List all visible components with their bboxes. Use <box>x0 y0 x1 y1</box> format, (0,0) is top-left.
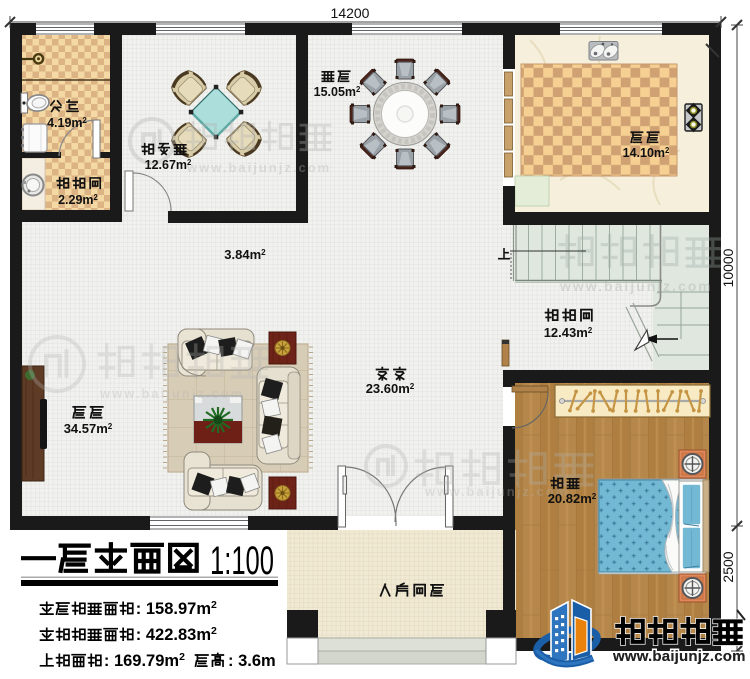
svg-text:1:100: 1:100 <box>210 539 274 583</box>
svg-text:2.29m2: 2.29m2 <box>58 193 98 207</box>
svg-text:: 422.83m2: : 422.83m2 <box>136 625 217 644</box>
svg-text:www.baijunjz.com: www.baijunjz.com <box>612 648 746 665</box>
svg-text:4.19m2: 4.19m2 <box>47 116 87 130</box>
svg-text:23.60m2: 23.60m2 <box>366 381 415 396</box>
svg-text:: 169.79m2: : 169.79m2 <box>104 651 185 670</box>
svg-text:12.67m2: 12.67m2 <box>145 158 192 172</box>
svg-text:www.baijunjz.com: www.baijunjz.com <box>186 160 331 175</box>
svg-text:www.baijunjz.com: www.baijunjz.com <box>559 278 713 294</box>
svg-text:14200: 14200 <box>331 5 370 21</box>
svg-text:www.baijunjz.com: www.baijunjz.com <box>99 386 244 401</box>
svg-text:: 3.6m: : 3.6m <box>228 652 276 670</box>
svg-text:12.43m2: 12.43m2 <box>544 325 593 340</box>
svg-text:: 158.97m2: : 158.97m2 <box>136 599 217 618</box>
svg-text:15.05m2: 15.05m2 <box>314 85 361 99</box>
svg-text:34.57m2: 34.57m2 <box>64 421 113 436</box>
svg-text:3.84m2: 3.84m2 <box>224 247 266 262</box>
svg-text:2500: 2500 <box>720 551 736 582</box>
svg-text:10000: 10000 <box>720 248 736 287</box>
svg-text:20.82m2: 20.82m2 <box>548 491 597 506</box>
svg-text:14.10m2: 14.10m2 <box>623 146 670 160</box>
